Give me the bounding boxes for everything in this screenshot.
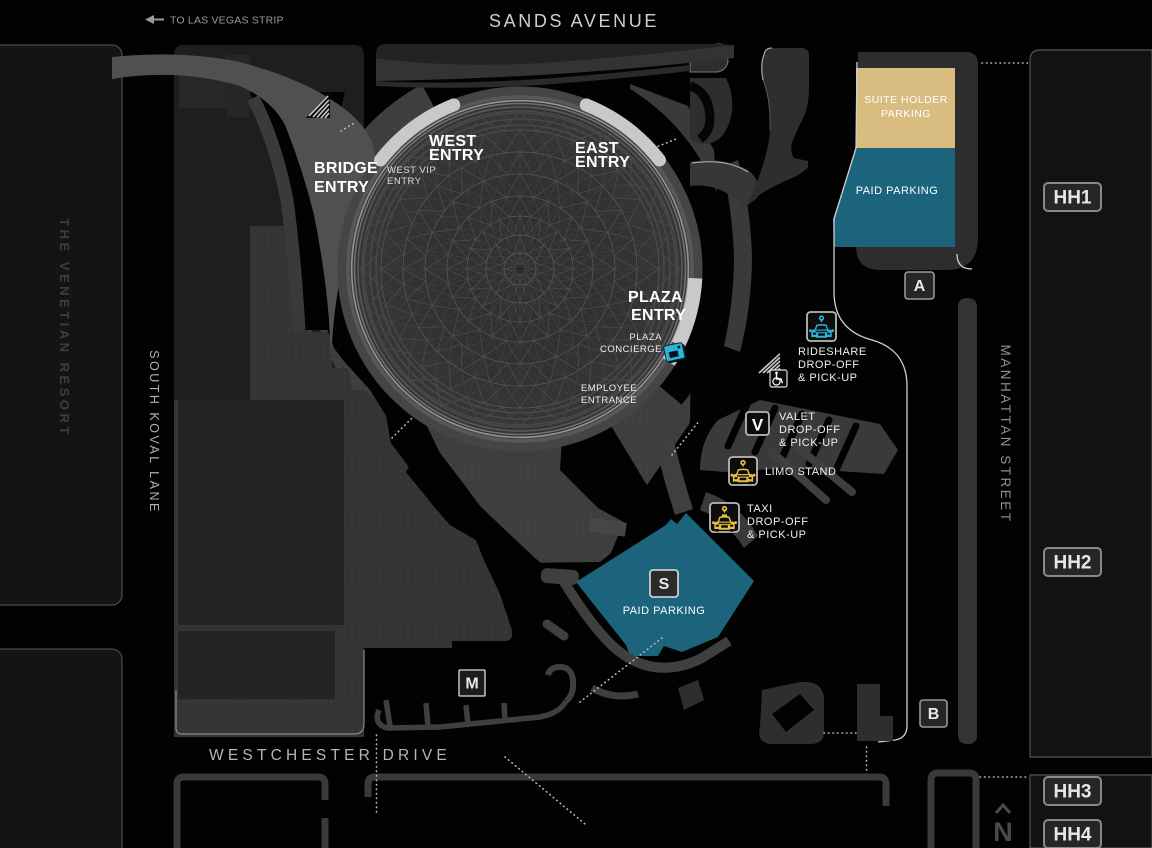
svg-text:SANDS AVENUE: SANDS AVENUE	[489, 11, 659, 31]
svg-text:ENTRY: ENTRY	[575, 154, 630, 171]
svg-text:& PICK-UP: & PICK-UP	[747, 529, 807, 541]
svg-text:MANHATTAN STREET: MANHATTAN STREET	[998, 344, 1013, 523]
svg-text:WEST VIP: WEST VIP	[387, 165, 436, 176]
svg-text:HH2: HH2	[1053, 553, 1091, 574]
svg-text:ENTRANCE: ENTRANCE	[581, 395, 637, 406]
svg-text:S: S	[659, 576, 670, 593]
svg-text:DROP-OFF: DROP-OFF	[747, 516, 808, 528]
svg-text:PLAZA: PLAZA	[628, 289, 683, 306]
svg-text:RIDESHARE: RIDESHARE	[798, 346, 867, 358]
svg-text:& PICK-UP: & PICK-UP	[798, 372, 858, 384]
svg-text:B: B	[928, 706, 940, 723]
svg-text:ENTRY: ENTRY	[631, 307, 686, 324]
svg-text:PARKING: PARKING	[881, 108, 931, 120]
svg-text:WESTCHESTER DRIVE: WESTCHESTER DRIVE	[209, 747, 451, 764]
svg-text:VALET: VALET	[779, 411, 816, 423]
svg-text:HH1: HH1	[1053, 188, 1091, 209]
svg-text:HH4: HH4	[1053, 825, 1091, 846]
svg-text:EMPLOYEE: EMPLOYEE	[581, 383, 637, 394]
svg-text:HH3: HH3	[1053, 782, 1091, 803]
svg-text:THE VENETIAN RESORT: THE VENETIAN RESORT	[57, 218, 72, 438]
svg-text:DROP-OFF: DROP-OFF	[779, 424, 840, 436]
svg-text:& PICK-UP: & PICK-UP	[779, 437, 839, 449]
svg-text:ENTRY: ENTRY	[429, 147, 484, 164]
svg-text:ENTRY: ENTRY	[314, 179, 369, 196]
svg-text:TAXI: TAXI	[747, 503, 773, 515]
svg-text:SOUTH KOVAL LANE: SOUTH KOVAL LANE	[147, 350, 161, 514]
svg-text:PLAZA: PLAZA	[629, 332, 662, 343]
svg-text:PAID PARKING: PAID PARKING	[623, 605, 706, 617]
svg-text:A: A	[914, 278, 926, 295]
svg-text:TO LAS VEGAS STRIP: TO LAS VEGAS STRIP	[170, 15, 284, 27]
svg-text:V: V	[752, 416, 764, 435]
svg-text:M: M	[465, 676, 478, 693]
svg-text:PAID PARKING: PAID PARKING	[856, 185, 939, 197]
svg-text:BRIDGE: BRIDGE	[314, 160, 378, 177]
svg-text:N: N	[993, 817, 1013, 847]
svg-text:CONCIERGE: CONCIERGE	[600, 344, 662, 355]
svg-text:ENTRY: ENTRY	[387, 176, 422, 187]
svg-text:DROP-OFF: DROP-OFF	[798, 359, 859, 371]
svg-text:LIMO STAND: LIMO STAND	[765, 466, 836, 478]
svg-text:SUITE HOLDER: SUITE HOLDER	[864, 94, 948, 106]
